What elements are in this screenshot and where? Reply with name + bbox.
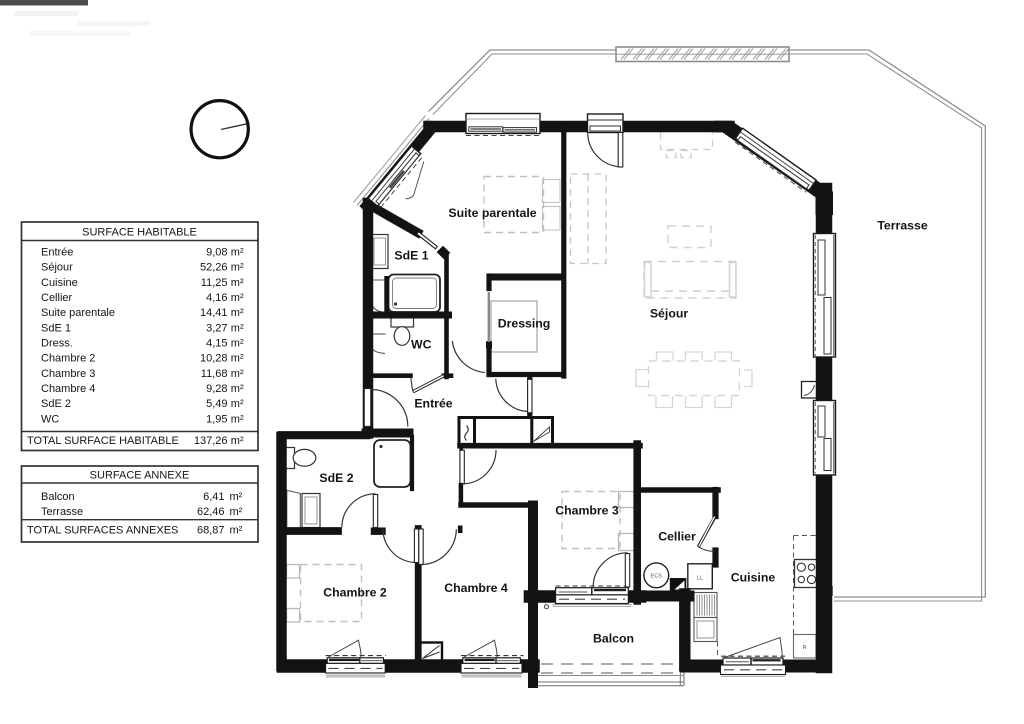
svg-text:SURFACE HABITABLE: SURFACE HABITABLE bbox=[82, 226, 197, 238]
svg-text:m²: m² bbox=[230, 491, 243, 503]
svg-text:Chambre 2: Chambre 2 bbox=[41, 353, 95, 365]
svg-text:Entrée: Entrée bbox=[41, 246, 73, 258]
svg-text:4,15: 4,15 bbox=[206, 338, 227, 350]
svg-text:m²: m² bbox=[231, 262, 244, 274]
svg-text:3,27: 3,27 bbox=[206, 322, 227, 334]
svg-text:m²: m² bbox=[231, 292, 244, 304]
svg-text:SdE 2: SdE 2 bbox=[41, 398, 71, 410]
svg-text:9,28: 9,28 bbox=[206, 383, 227, 395]
svg-text:SdE 1: SdE 1 bbox=[41, 322, 71, 334]
svg-text:4,16: 4,16 bbox=[206, 292, 227, 304]
svg-text:Balcon: Balcon bbox=[41, 491, 75, 503]
svg-text:m²: m² bbox=[231, 307, 244, 319]
svg-text:Cellier: Cellier bbox=[658, 530, 696, 544]
svg-text:Cuisine: Cuisine bbox=[731, 571, 776, 585]
svg-text:52,26: 52,26 bbox=[200, 262, 228, 274]
svg-text:6,41: 6,41 bbox=[203, 491, 224, 503]
svg-text:137,26: 137,26 bbox=[194, 435, 228, 447]
svg-text:Terrasse: Terrasse bbox=[41, 506, 83, 518]
svg-text:TOTAL SURFACES ANNEXES: TOTAL SURFACES ANNEXES bbox=[27, 525, 178, 537]
svg-text:LL: LL bbox=[697, 576, 703, 582]
svg-text:m²: m² bbox=[231, 338, 244, 350]
svg-text:Cellier: Cellier bbox=[41, 292, 73, 304]
svg-text:1,95: 1,95 bbox=[206, 413, 227, 425]
svg-text:SURFACE ANNEXE: SURFACE ANNEXE bbox=[90, 470, 190, 482]
svg-text:Chambre 2: Chambre 2 bbox=[323, 586, 387, 600]
svg-text:Chambre 4: Chambre 4 bbox=[444, 581, 508, 595]
svg-text:m²: m² bbox=[231, 435, 244, 447]
svg-text:11,68: 11,68 bbox=[201, 368, 228, 380]
svg-text:68,87: 68,87 bbox=[197, 525, 225, 537]
svg-text:WC: WC bbox=[411, 338, 432, 352]
svg-text:Cuisine: Cuisine bbox=[41, 277, 78, 289]
svg-text:Dressing: Dressing bbox=[498, 317, 551, 331]
svg-text:Terrasse: Terrasse bbox=[877, 219, 928, 233]
svg-text:Suite parentale: Suite parentale bbox=[448, 206, 536, 220]
svg-text:14,41: 14,41 bbox=[200, 307, 228, 319]
svg-text:m²: m² bbox=[231, 277, 244, 289]
svg-text:R: R bbox=[803, 645, 807, 651]
svg-text:m²: m² bbox=[231, 383, 244, 395]
svg-text:m²: m² bbox=[231, 322, 244, 334]
svg-text:62,46: 62,46 bbox=[197, 506, 225, 518]
svg-text:m²: m² bbox=[231, 246, 244, 258]
svg-text:5,49: 5,49 bbox=[206, 398, 227, 410]
svg-text:SdE 2: SdE 2 bbox=[319, 471, 353, 485]
svg-text:SdE 1: SdE 1 bbox=[394, 249, 428, 263]
svg-text:Chambre 3: Chambre 3 bbox=[41, 368, 95, 380]
svg-text:11,25: 11,25 bbox=[201, 277, 228, 289]
svg-text:Suite parentale: Suite parentale bbox=[41, 307, 115, 319]
svg-text:Séjour: Séjour bbox=[650, 307, 688, 321]
svg-text:10,28: 10,28 bbox=[200, 353, 228, 365]
svg-text:m²: m² bbox=[230, 525, 243, 537]
svg-text:Séjour: Séjour bbox=[41, 262, 73, 274]
svg-text:ECS: ECS bbox=[651, 574, 663, 580]
svg-text:WC: WC bbox=[41, 413, 59, 425]
svg-text:Chambre 3: Chambre 3 bbox=[555, 504, 619, 518]
svg-text:Balcon: Balcon bbox=[593, 632, 634, 646]
svg-text:Dress.: Dress. bbox=[41, 338, 73, 350]
svg-text:Chambre 4: Chambre 4 bbox=[41, 383, 95, 395]
svg-text:TOTAL SURFACE HABITABLE: TOTAL SURFACE HABITABLE bbox=[27, 435, 179, 447]
svg-text:m²: m² bbox=[231, 368, 244, 380]
svg-text:m²: m² bbox=[230, 506, 243, 518]
svg-text:Entrée: Entrée bbox=[414, 397, 452, 411]
svg-text:m²: m² bbox=[231, 353, 244, 365]
svg-text:9,08: 9,08 bbox=[206, 246, 227, 258]
svg-text:m²: m² bbox=[231, 413, 244, 425]
svg-text:m²: m² bbox=[231, 398, 244, 410]
